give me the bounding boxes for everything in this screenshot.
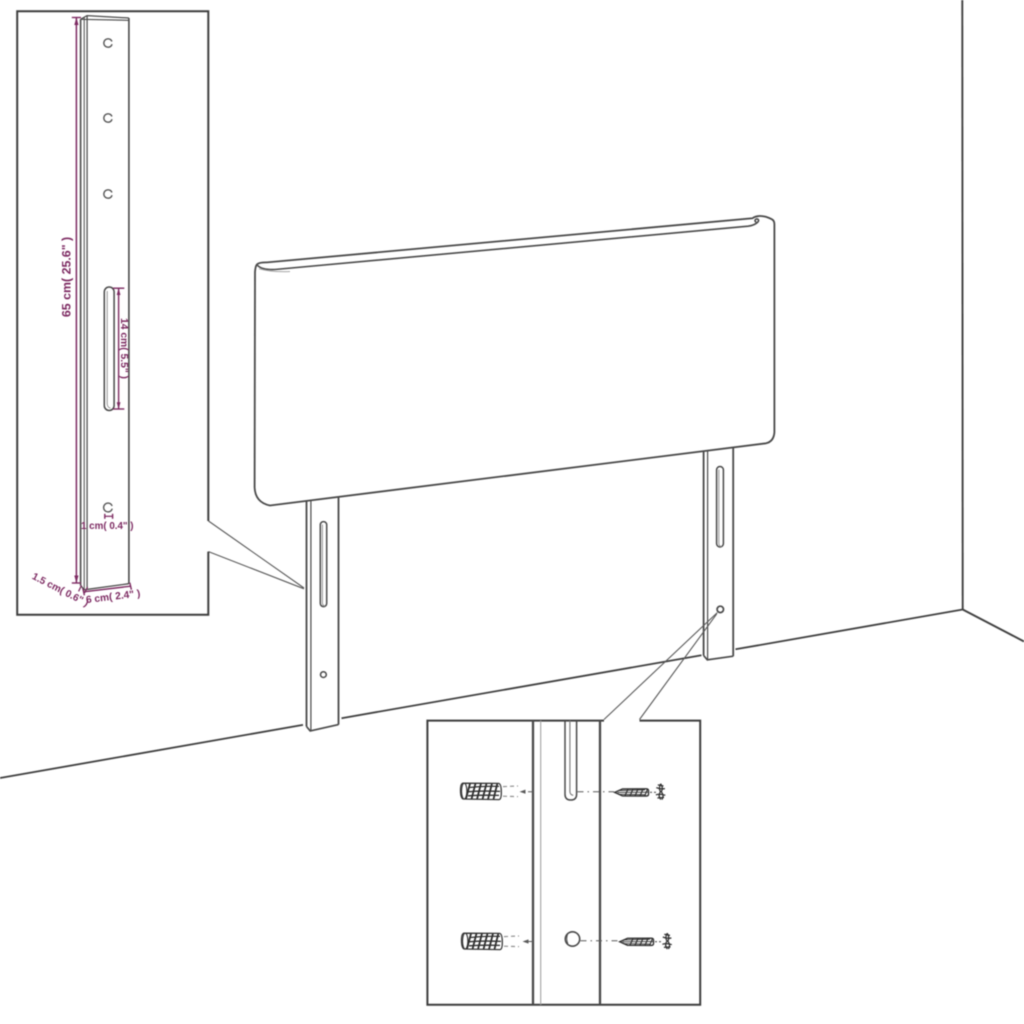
svg-text:14 cm( 5.5" ): 14 cm( 5.5" ) [118, 318, 129, 379]
svg-text:1 cm( 0.4" ): 1 cm( 0.4" ) [81, 521, 134, 532]
svg-text:65 cm( 25.6" ): 65 cm( 25.6" ) [60, 237, 74, 317]
